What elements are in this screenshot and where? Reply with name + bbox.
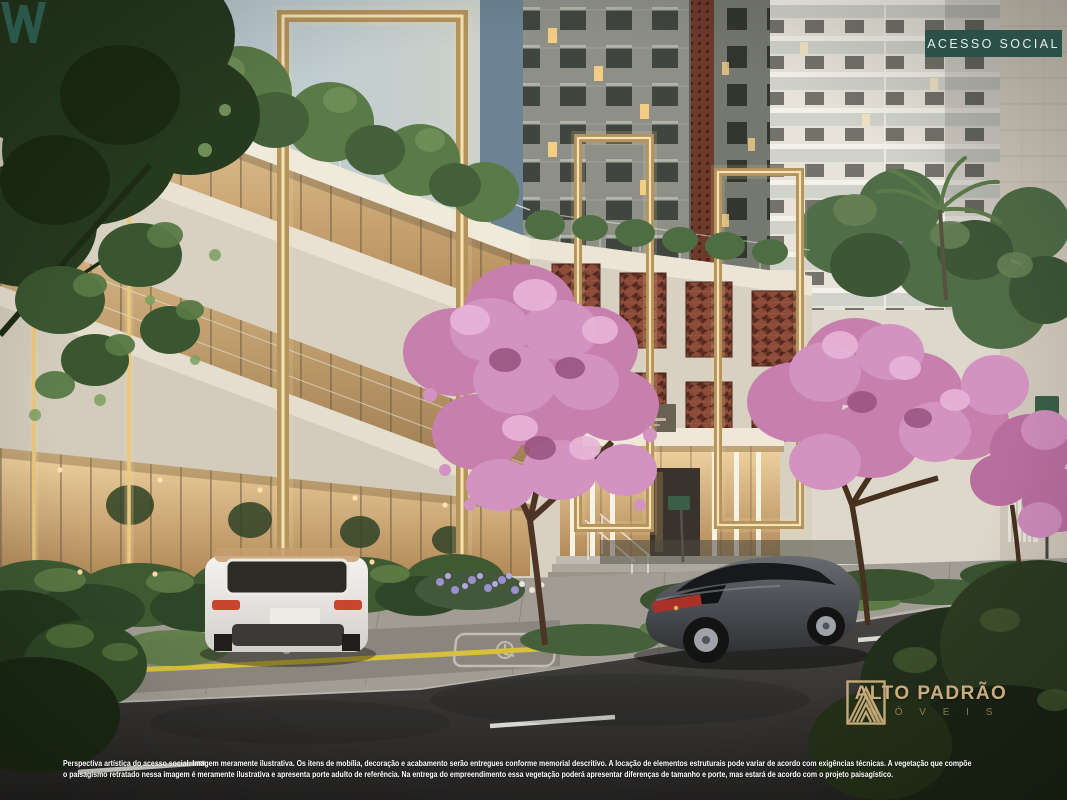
disclaimer-line-2: o paisagismo retratado nessa imagem é me… (63, 769, 971, 780)
w-monogram-icon (0, 0, 47, 45)
acesso-social-badge: ACESSO SOCIAL (925, 30, 1062, 57)
disclaimer: Perspectiva artística do acesso social. … (63, 758, 1067, 779)
seal-subtitle: M Ó V E I S (846, 707, 1016, 718)
architectural-render: ACESSO SOCIAL ALTO PADRÃO M Ó V E I S Pe… (0, 0, 1067, 800)
alto-padrao-seal: ALTO PADRÃO M Ó V E I S (846, 678, 1016, 718)
badge-label: ACESSO SOCIAL (927, 37, 1060, 51)
disclaimer-line-1: Perspectiva artística do acesso social. … (63, 758, 971, 769)
